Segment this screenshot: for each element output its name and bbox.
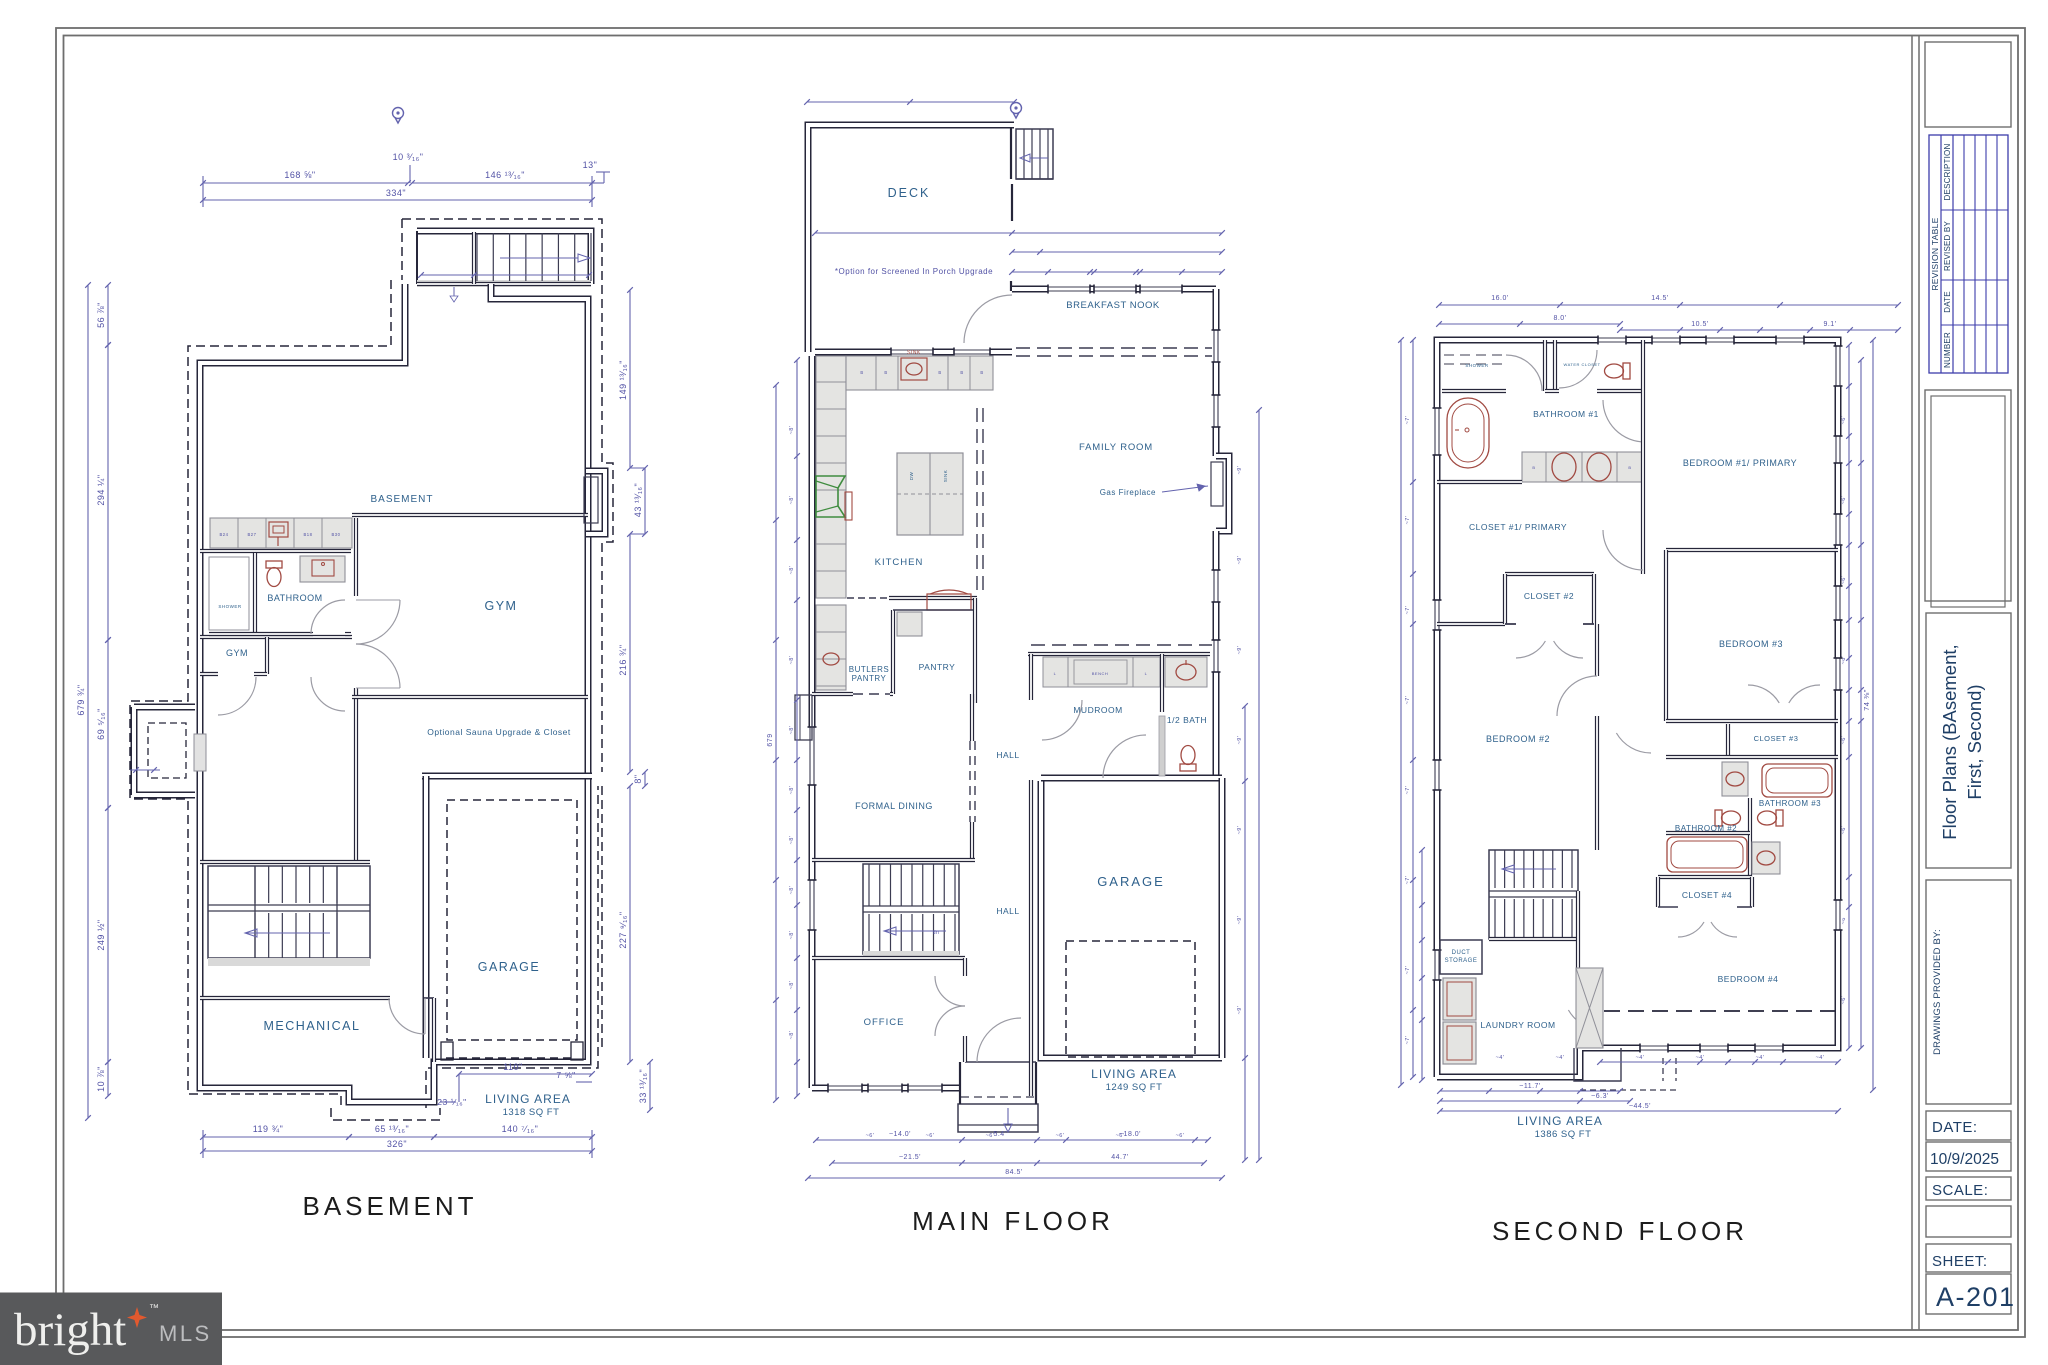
svg-text:1318 SQ FT: 1318 SQ FT xyxy=(503,1107,560,1118)
svg-text:BUTLERS: BUTLERS xyxy=(849,665,889,674)
svg-text:~7': ~7' xyxy=(1405,416,1411,425)
svg-text:9.1': 9.1' xyxy=(1823,321,1836,328)
svg-text:MLS: MLS xyxy=(159,1321,212,1346)
svg-text:~6': ~6' xyxy=(1056,1133,1065,1139)
svg-text:First, Second): First, Second) xyxy=(1964,684,1985,799)
svg-text:MECHANICAL: MECHANICAL xyxy=(264,1019,361,1033)
svg-text:SHEET:: SHEET: xyxy=(1932,1253,1988,1270)
svg-text:~8': ~8' xyxy=(789,726,795,735)
svg-text:10/9/2025: 10/9/2025 xyxy=(1930,1151,1999,1168)
svg-text:B27: B27 xyxy=(248,532,257,537)
svg-text:B: B xyxy=(860,370,863,375)
svg-text:~11.7': ~11.7' xyxy=(1519,1083,1541,1090)
svg-text:146 ¹³⁄₁₆": 146 ¹³⁄₁₆" xyxy=(485,170,525,180)
svg-text:™: ™ xyxy=(149,1303,160,1314)
svg-text:~7': ~7' xyxy=(1405,696,1411,705)
svg-text:~18.0': ~18.0' xyxy=(1119,1131,1141,1138)
svg-text:BATHROOM: BATHROOM xyxy=(267,593,322,603)
svg-text:MAIN FLOOR: MAIN FLOOR xyxy=(912,1206,1114,1236)
svg-text:~7': ~7' xyxy=(1405,1036,1411,1045)
svg-text:BEDROOM #4: BEDROOM #4 xyxy=(1718,974,1779,984)
svg-text:DATE: DATE xyxy=(1943,291,1952,313)
svg-text:~4': ~4' xyxy=(1556,1055,1565,1061)
svg-text:140 ⁷⁄₁₆": 140 ⁷⁄₁₆" xyxy=(502,1124,539,1134)
svg-text:~9': ~9' xyxy=(1237,736,1243,745)
svg-text:249 ½": 249 ½" xyxy=(96,919,106,950)
svg-text:REVISED BY: REVISED BY xyxy=(1943,221,1952,271)
svg-text:33 ¹³⁄₁₆": 33 ¹³⁄₁₆" xyxy=(638,1069,648,1103)
svg-text:84.5': 84.5' xyxy=(1005,1169,1022,1176)
svg-text:~6': ~6' xyxy=(1841,496,1847,505)
svg-text:~4': ~4' xyxy=(1496,1055,1505,1061)
svg-text:~9': ~9' xyxy=(1237,466,1243,475)
svg-text:10.5': 10.5' xyxy=(1691,321,1708,328)
svg-text:~6': ~6' xyxy=(1841,416,1847,425)
svg-text:SECOND FLOOR: SECOND FLOOR xyxy=(1492,1216,1748,1246)
svg-text:43 ¹³⁄₁₆": 43 ¹³⁄₁₆" xyxy=(633,483,643,517)
svg-text:B18: B18 xyxy=(304,532,313,537)
svg-text:Floor Plans (BAsement,: Floor Plans (BAsement, xyxy=(1939,644,1960,839)
svg-text:HALL: HALL xyxy=(996,750,1019,760)
svg-text:Gas Fireplace: Gas Fireplace xyxy=(1100,488,1156,497)
svg-text:BASEMENT: BASEMENT xyxy=(370,494,433,505)
svg-text:~6': ~6' xyxy=(926,1133,935,1139)
svg-text:10 ⅞": 10 ⅞" xyxy=(96,1066,106,1092)
svg-text:~8': ~8' xyxy=(789,836,795,845)
svg-text:326": 326" xyxy=(387,1139,407,1149)
svg-text:8.0': 8.0' xyxy=(1553,315,1566,322)
svg-text:DUCT: DUCT xyxy=(1452,950,1471,956)
svg-text:dn: dn xyxy=(933,930,940,936)
svg-text:PANTRY: PANTRY xyxy=(852,674,887,683)
svg-text:679: 679 xyxy=(767,733,774,746)
svg-text:16.0': 16.0' xyxy=(1491,295,1508,302)
svg-text:CLOSET #1/ PRIMARY: CLOSET #1/ PRIMARY xyxy=(1469,522,1567,532)
svg-text:56 ⅞": 56 ⅞" xyxy=(96,302,106,328)
svg-text:DECK: DECK xyxy=(888,186,931,200)
svg-text:~9': ~9' xyxy=(1237,826,1243,835)
svg-text:216 ¾": 216 ¾" xyxy=(618,644,628,675)
svg-text:~7': ~7' xyxy=(1405,966,1411,975)
svg-text:PANTRY: PANTRY xyxy=(919,662,956,672)
svg-text:13": 13" xyxy=(583,160,598,170)
svg-text:~6': ~6' xyxy=(1841,826,1847,835)
svg-text:SINK: SINK xyxy=(907,350,921,356)
svg-text:KITCHEN: KITCHEN xyxy=(875,557,924,568)
svg-text:~8': ~8' xyxy=(789,981,795,990)
svg-text:~9': ~9' xyxy=(1237,1006,1243,1015)
svg-text:L: L xyxy=(1054,671,1057,676)
svg-text:B: B xyxy=(1532,465,1535,470)
svg-text:~8': ~8' xyxy=(789,786,795,795)
svg-text:GARAGE: GARAGE xyxy=(478,960,541,974)
svg-text:~14.0': ~14.0' xyxy=(889,1131,911,1138)
svg-text:~8': ~8' xyxy=(789,496,795,505)
svg-text:bright: bright xyxy=(14,1304,126,1356)
svg-text:~8': ~8' xyxy=(789,1031,795,1040)
svg-text:BATHROOM #3: BATHROOM #3 xyxy=(1759,799,1821,808)
svg-text:679 ¾": 679 ¾" xyxy=(76,684,86,715)
svg-text:B24: B24 xyxy=(220,532,229,537)
svg-text:~6': ~6' xyxy=(1841,736,1847,745)
svg-text:HALL: HALL xyxy=(996,906,1019,916)
svg-text:DATE:: DATE: xyxy=(1932,1119,1978,1136)
svg-text:A-201: A-201 xyxy=(1936,1282,2016,1312)
svg-text:~4': ~4' xyxy=(1816,1055,1825,1061)
svg-text:~8': ~8' xyxy=(789,931,795,940)
svg-text:~4': ~4' xyxy=(1696,1055,1705,1061)
svg-text:227 ⁹⁄₁₆": 227 ⁹⁄₁₆" xyxy=(618,911,628,948)
svg-text:~8': ~8' xyxy=(789,656,795,665)
svg-text:DW: DW xyxy=(909,472,914,481)
svg-text:~6': ~6' xyxy=(866,1133,875,1139)
svg-text:~7': ~7' xyxy=(1405,516,1411,525)
svg-text:L: L xyxy=(1145,671,1148,676)
svg-text:BREAKFAST NOOK: BREAKFAST NOOK xyxy=(1066,300,1160,311)
svg-text:65 ¹³⁄₁₆": 65 ¹³⁄₁₆" xyxy=(375,1124,409,1134)
svg-text:GYM: GYM xyxy=(226,648,248,658)
svg-text:110": 110" xyxy=(503,1062,523,1072)
svg-text:WATER CLOSET: WATER CLOSET xyxy=(1563,362,1600,367)
svg-text:B30: B30 xyxy=(332,532,341,537)
svg-text:294 ¼": 294 ¼" xyxy=(96,474,106,505)
svg-text:OFFICE: OFFICE xyxy=(864,1017,905,1028)
svg-text:1386 SQ FT: 1386 SQ FT xyxy=(1535,1129,1592,1140)
svg-text:*Option for Screened In Porch: *Option for Screened In Porch Upgrade xyxy=(835,267,993,276)
svg-text:~8': ~8' xyxy=(789,566,795,575)
svg-text:10 ³⁄₁₆": 10 ³⁄₁₆" xyxy=(393,152,424,162)
svg-text:SHOWER: SHOWER xyxy=(1465,363,1489,368)
svg-text:~7': ~7' xyxy=(1405,786,1411,795)
svg-text:14.5': 14.5' xyxy=(1651,295,1668,302)
svg-text:334": 334" xyxy=(386,188,406,198)
svg-text:119 ¾": 119 ¾" xyxy=(253,1124,284,1134)
svg-text:REVISION TABLE: REVISION TABLE xyxy=(1930,217,1940,290)
svg-text:BEDROOM #3: BEDROOM #3 xyxy=(1719,639,1783,649)
svg-text:~6': ~6' xyxy=(1841,576,1847,585)
svg-text:1/2 BATH: 1/2 BATH xyxy=(1167,715,1207,725)
svg-text:CLOSET #3: CLOSET #3 xyxy=(1754,734,1799,743)
svg-text:B: B xyxy=(980,370,983,375)
svg-text:1249 SQ FT: 1249 SQ FT xyxy=(1106,1082,1163,1093)
svg-text:~44.5': ~44.5' xyxy=(1629,1103,1651,1110)
svg-text:LIVING AREA: LIVING AREA xyxy=(1091,1067,1177,1081)
svg-text:~21.5': ~21.5' xyxy=(899,1154,921,1161)
svg-text:44.7': 44.7' xyxy=(1111,1154,1128,1161)
svg-text:BEDROOM #2: BEDROOM #2 xyxy=(1486,734,1550,744)
svg-text:CLOSET #2: CLOSET #2 xyxy=(1524,591,1574,601)
svg-text:FORMAL DINING: FORMAL DINING xyxy=(855,801,933,811)
svg-text:Optional Sauna Upgrade & Close: Optional Sauna Upgrade & Closet xyxy=(427,727,571,737)
svg-text:~9': ~9' xyxy=(1237,556,1243,565)
svg-text:DESCRIPTION: DESCRIPTION xyxy=(1943,144,1952,201)
svg-text:~8': ~8' xyxy=(789,886,795,895)
svg-text:~6.3': ~6.3' xyxy=(1591,1093,1609,1100)
svg-text:69 ⁵⁄₁₆": 69 ⁵⁄₁₆" xyxy=(96,708,106,740)
svg-text:BASEMENT: BASEMENT xyxy=(302,1191,477,1221)
svg-text:74 ⅜": 74 ⅜" xyxy=(1862,689,1871,711)
svg-text:B: B xyxy=(1628,465,1631,470)
svg-text:BEDROOM #1/ PRIMARY: BEDROOM #1/ PRIMARY xyxy=(1683,458,1797,468)
svg-text:LAUNDRY ROOM: LAUNDRY ROOM xyxy=(1480,1020,1555,1030)
svg-text:~7': ~7' xyxy=(1405,876,1411,885)
svg-text:B: B xyxy=(938,370,941,375)
svg-text:GARAGE: GARAGE xyxy=(1097,874,1165,889)
svg-text:B: B xyxy=(960,370,963,375)
svg-text:~7': ~7' xyxy=(1405,606,1411,615)
svg-text:~6': ~6' xyxy=(1176,1133,1185,1139)
svg-text:~8': ~8' xyxy=(789,426,795,435)
svg-text:~9': ~9' xyxy=(1237,646,1243,655)
svg-text:~9': ~9' xyxy=(1237,916,1243,925)
svg-text:DRAWINGS PROVIDED BY:: DRAWINGS PROVIDED BY: xyxy=(1932,929,1943,1055)
svg-text:8": 8" xyxy=(633,774,643,783)
svg-text:168 ⅝": 168 ⅝" xyxy=(284,170,315,180)
svg-text:B: B xyxy=(884,370,887,375)
svg-text:SCALE:: SCALE: xyxy=(1932,1182,1988,1199)
svg-text:NUMBER: NUMBER xyxy=(1943,332,1952,368)
svg-text:149 ¹³⁄₁₆": 149 ¹³⁄₁₆" xyxy=(618,360,628,400)
svg-text:SHOWER: SHOWER xyxy=(218,604,242,609)
svg-text:SINK: SINK xyxy=(943,470,948,483)
svg-text:~4': ~4' xyxy=(1636,1055,1645,1061)
svg-text:GYM: GYM xyxy=(485,599,518,613)
svg-text:CLOSET #4: CLOSET #4 xyxy=(1682,890,1732,900)
svg-text:~6': ~6' xyxy=(1841,996,1847,1005)
svg-text:BATHROOM #1: BATHROOM #1 xyxy=(1533,409,1599,419)
svg-text:LIVING AREA: LIVING AREA xyxy=(1517,1114,1603,1128)
svg-text:23 ¹⁄₁₆": 23 ¹⁄₁₆" xyxy=(437,1097,466,1107)
svg-text:FAMILY ROOM: FAMILY ROOM xyxy=(1079,442,1153,453)
svg-text:STORAGE: STORAGE xyxy=(1445,958,1478,964)
svg-text:BENCH: BENCH xyxy=(1092,671,1109,676)
svg-text:LIVING AREA: LIVING AREA xyxy=(485,1092,571,1106)
svg-text:5.4': 5.4' xyxy=(993,1131,1006,1138)
svg-text:7 ⅝": 7 ⅝" xyxy=(556,1070,575,1080)
